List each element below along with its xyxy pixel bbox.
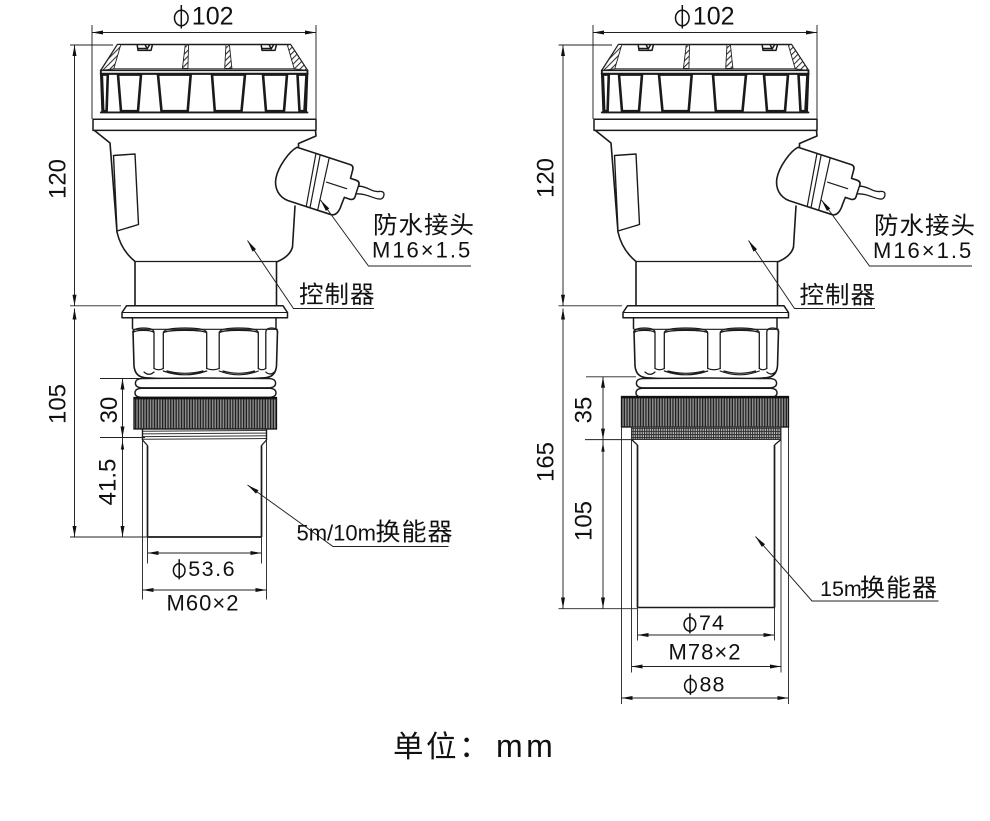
svg-text:41.5: 41.5 — [94, 459, 121, 506]
svg-text:165: 165 — [532, 442, 559, 482]
svg-text:M16×1.5: M16×1.5 — [873, 238, 973, 263]
svg-text:120: 120 — [44, 159, 71, 199]
svg-text:M16×1.5: M16×1.5 — [372, 238, 472, 263]
svg-text:30: 30 — [96, 397, 123, 424]
svg-text:53.6: 53.6 — [188, 557, 236, 581]
svg-text:mm: mm — [496, 728, 556, 764]
svg-text:105: 105 — [44, 384, 71, 424]
svg-text:M60×2: M60×2 — [167, 591, 240, 616]
svg-text:M78×2: M78×2 — [669, 640, 742, 665]
svg-text:15m: 15m — [820, 577, 862, 601]
svg-text:88: 88 — [700, 673, 726, 697]
svg-text:5m/10m: 5m/10m — [297, 521, 376, 546]
svg-text:102: 102 — [192, 3, 234, 31]
svg-text:74: 74 — [699, 611, 725, 635]
svg-text:102: 102 — [693, 3, 735, 31]
svg-text:120: 120 — [532, 158, 559, 198]
svg-text:35: 35 — [570, 397, 597, 424]
svg-text:105: 105 — [570, 501, 597, 541]
